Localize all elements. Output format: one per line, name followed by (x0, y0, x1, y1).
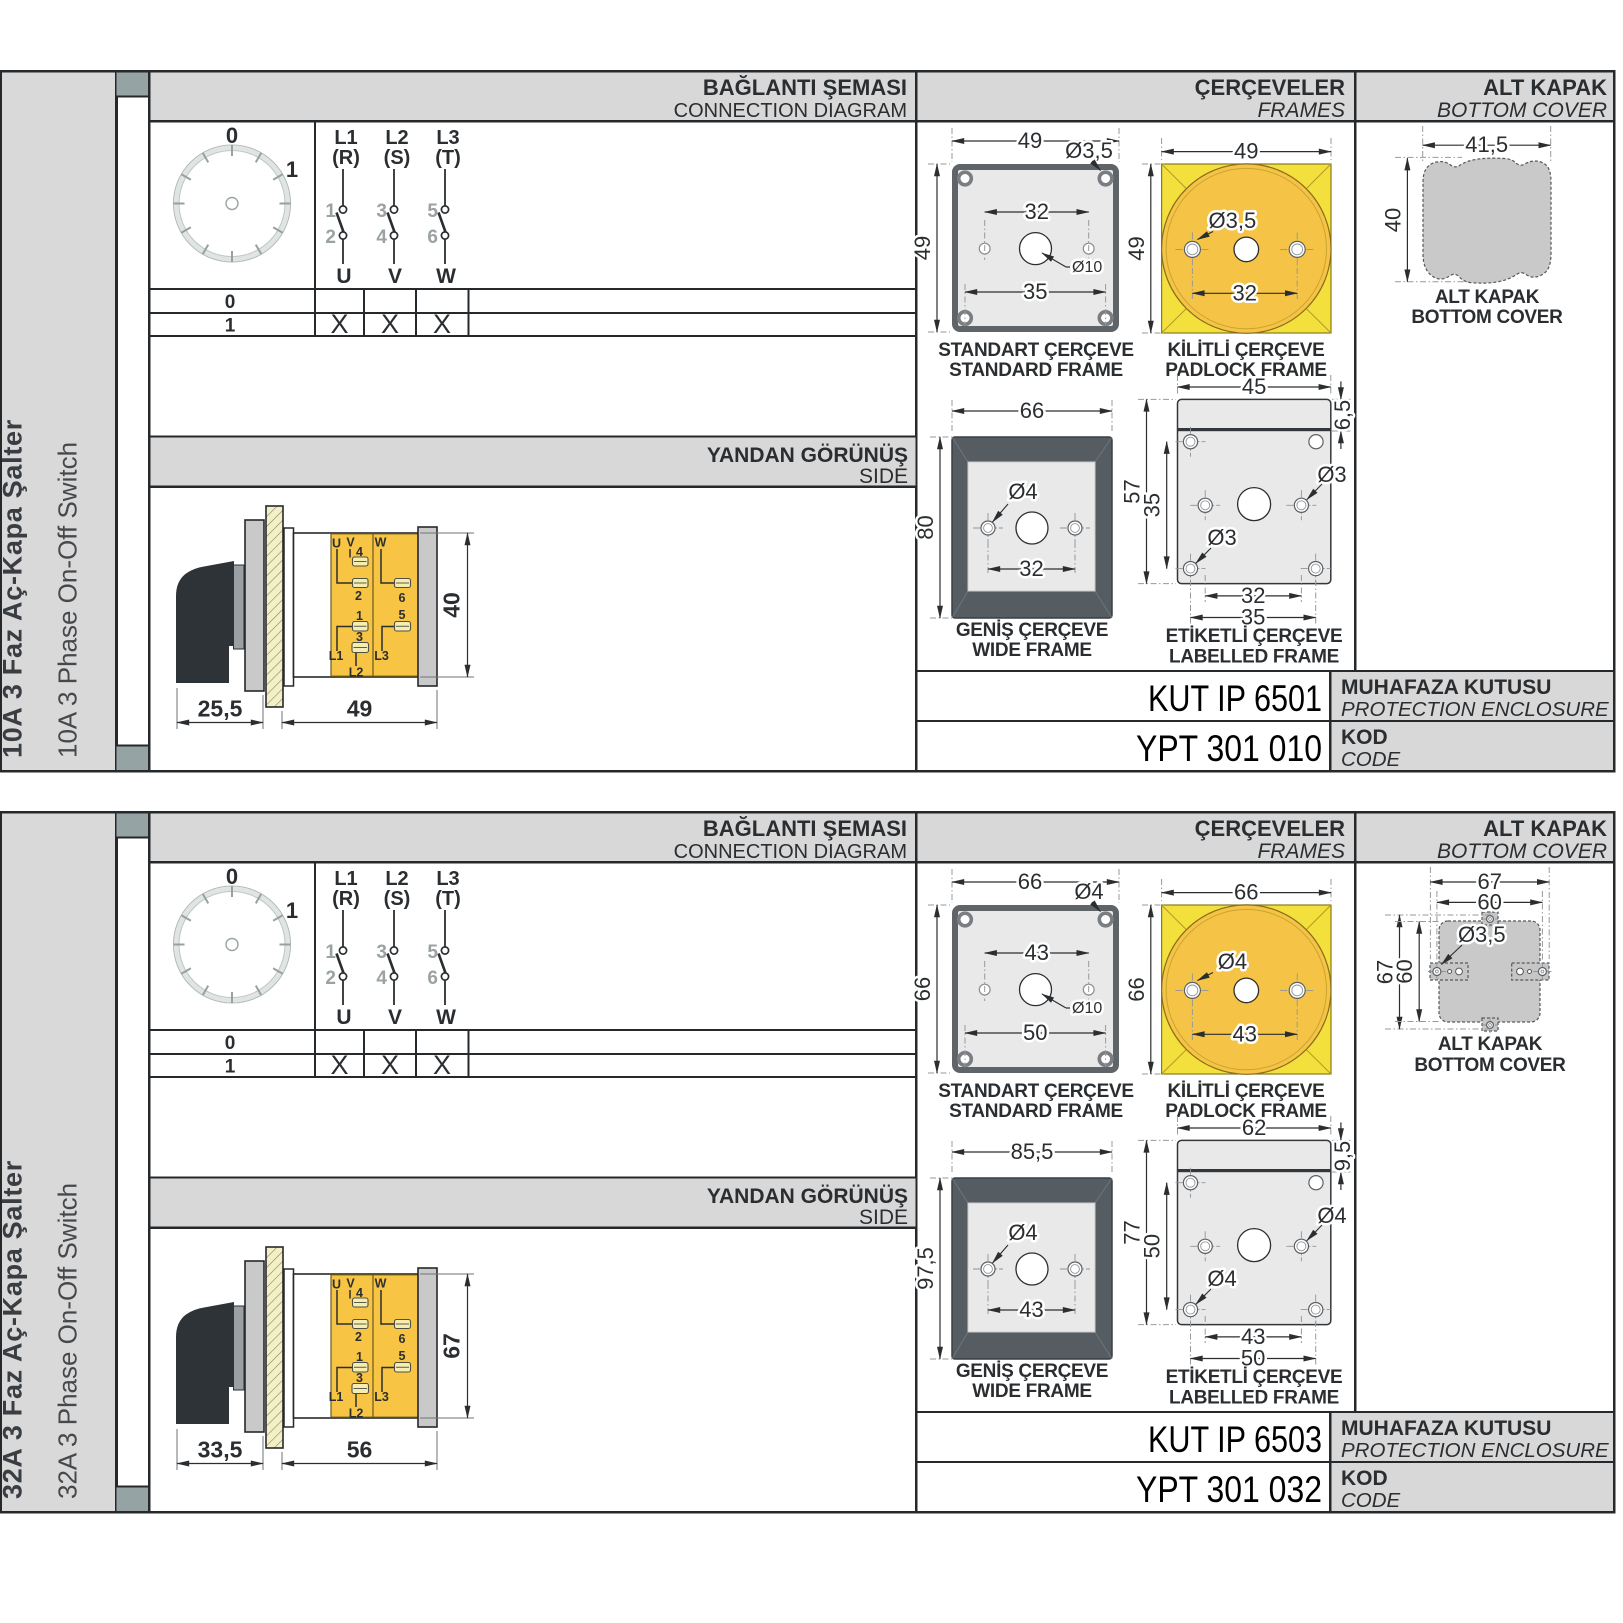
svg-text:(R): (R) (332, 147, 360, 169)
svg-text:V: V (346, 1277, 355, 1291)
svg-text:35: 35 (1023, 279, 1047, 304)
svg-text:3: 3 (376, 201, 387, 222)
svg-text:4: 4 (356, 1286, 363, 1300)
svg-text:ALT KAPAK: ALT KAPAK (1483, 75, 1607, 100)
svg-text:4: 4 (356, 545, 363, 559)
svg-text:ALT KAPAK: ALT KAPAK (1483, 816, 1607, 841)
svg-text:0: 0 (226, 123, 238, 148)
svg-text:5: 5 (399, 1349, 406, 1363)
svg-text:3: 3 (356, 1371, 363, 1385)
svg-text:W: W (436, 1006, 456, 1029)
svg-text:40: 40 (1380, 208, 1405, 232)
svg-text:25,5: 25,5 (198, 696, 243, 722)
svg-text:66: 66 (1018, 869, 1042, 894)
svg-text:1: 1 (286, 898, 298, 923)
svg-text:49: 49 (1234, 139, 1258, 164)
svg-text:Ø4: Ø4 (1317, 1203, 1346, 1228)
svg-text:Ø10: Ø10 (1072, 259, 1102, 276)
svg-text:2: 2 (355, 589, 362, 603)
svg-text:Ø3,5: Ø3,5 (1458, 922, 1506, 947)
svg-text:GENİŞ ÇERÇEVE: GENİŞ ÇERÇEVE (956, 1361, 1108, 1382)
svg-text:1: 1 (356, 1350, 363, 1364)
svg-text:BOTTOM COVER: BOTTOM COVER (1414, 1055, 1566, 1076)
svg-text:97,5: 97,5 (913, 1247, 938, 1290)
svg-text:MUHAFAZA KUTUSU: MUHAFAZA KUTUSU (1341, 1417, 1551, 1440)
svg-text:SIDE: SIDE (859, 1206, 908, 1229)
svg-text:X: X (433, 309, 451, 339)
svg-text:6: 6 (427, 227, 438, 248)
svg-text:45: 45 (1242, 374, 1266, 399)
svg-text:PROTECTION ENCLOSURE: PROTECTION ENCLOSURE (1341, 1439, 1609, 1462)
svg-text:49: 49 (1018, 128, 1042, 153)
svg-text:L3: L3 (436, 127, 459, 149)
svg-text:L2: L2 (349, 666, 364, 680)
svg-text:49: 49 (910, 236, 935, 260)
svg-text:STANDARD FRAME: STANDARD FRAME (949, 360, 1123, 381)
svg-text:U: U (332, 1278, 341, 1292)
svg-text:1: 1 (225, 1057, 236, 1078)
svg-text:CODE: CODE (1341, 748, 1401, 771)
svg-text:2: 2 (355, 1330, 362, 1344)
svg-text:KOD: KOD (1341, 1467, 1388, 1490)
svg-text:(R): (R) (332, 888, 360, 910)
svg-text:L1: L1 (334, 868, 357, 890)
svg-text:2: 2 (325, 968, 336, 989)
svg-text:66: 66 (910, 977, 935, 1001)
svg-text:STANDART ÇERÇEVE: STANDART ÇERÇEVE (938, 1081, 1133, 1102)
svg-text:L2: L2 (349, 1407, 364, 1421)
svg-text:Ø10: Ø10 (1072, 1000, 1102, 1017)
svg-text:3: 3 (376, 942, 387, 963)
svg-text:ÇERÇEVELER: ÇERÇEVELER (1195, 75, 1345, 100)
svg-text:X: X (330, 1050, 348, 1080)
svg-text:ETİKETLİ ÇERÇEVE: ETİKETLİ ÇERÇEVE (1166, 1367, 1343, 1388)
svg-text:1: 1 (225, 316, 236, 337)
svg-text:FRAMES: FRAMES (1257, 840, 1345, 863)
svg-text:4: 4 (376, 227, 387, 248)
svg-text:V: V (388, 265, 402, 288)
svg-text:LABELLED FRAME: LABELLED FRAME (1169, 1388, 1339, 1409)
svg-text:80: 80 (913, 515, 938, 539)
svg-text:L2: L2 (385, 868, 408, 890)
svg-text:5: 5 (427, 201, 438, 222)
svg-text:V: V (346, 536, 355, 550)
svg-text:PROTECTION ENCLOSURE: PROTECTION ENCLOSURE (1341, 698, 1609, 721)
svg-text:Ø3: Ø3 (1207, 525, 1236, 550)
svg-text:FRAMES: FRAMES (1257, 99, 1345, 122)
svg-text:U: U (336, 265, 351, 288)
svg-text:BAĞLANTI ŞEMASI: BAĞLANTI ŞEMASI (703, 75, 907, 100)
svg-text:60: 60 (1392, 959, 1417, 983)
svg-text:1: 1 (356, 609, 363, 623)
svg-text:50: 50 (1140, 1234, 1165, 1258)
svg-text:CODE: CODE (1341, 1489, 1401, 1512)
svg-text:KUT IP 6501: KUT IP 6501 (1148, 678, 1322, 719)
svg-text:(S): (S) (384, 888, 411, 910)
svg-text:BAĞLANTI ŞEMASI: BAĞLANTI ŞEMASI (703, 816, 907, 841)
svg-text:10A 3 Phase On-Off Switch: 10A 3 Phase On-Off Switch (53, 442, 83, 758)
svg-text:STANDARD FRAME: STANDARD FRAME (949, 1101, 1123, 1122)
svg-text:6: 6 (399, 591, 406, 605)
svg-text:49: 49 (347, 696, 373, 722)
svg-text:CONNECTION DIAGRAM: CONNECTION DIAGRAM (674, 100, 907, 122)
svg-text:50: 50 (1023, 1020, 1047, 1045)
svg-text:W: W (375, 1277, 387, 1291)
svg-text:0: 0 (225, 292, 236, 313)
svg-text:62: 62 (1242, 1115, 1266, 1140)
svg-text:41,5: 41,5 (1465, 132, 1508, 157)
svg-text:L3: L3 (374, 1390, 389, 1404)
svg-text:X: X (433, 1050, 451, 1080)
svg-text:MUHAFAZA KUTUSU: MUHAFAZA KUTUSU (1341, 676, 1551, 699)
svg-text:L3: L3 (436, 868, 459, 890)
svg-text:1: 1 (325, 201, 336, 222)
svg-text:BOTTOM COVER: BOTTOM COVER (1437, 99, 1607, 122)
svg-text:(S): (S) (384, 147, 411, 169)
svg-text:W: W (375, 536, 387, 550)
svg-text:Ø4: Ø4 (1008, 479, 1037, 504)
svg-text:YANDAN GÖRÜNÜŞ: YANDAN GÖRÜNÜŞ (707, 444, 908, 467)
svg-text:ETİKETLİ ÇERÇEVE: ETİKETLİ ÇERÇEVE (1166, 626, 1343, 647)
svg-text:BOTTOM COVER: BOTTOM COVER (1411, 307, 1563, 328)
svg-text:L1: L1 (329, 1390, 344, 1404)
svg-text:YPT 301 010: YPT 301 010 (1136, 728, 1322, 769)
svg-text:66: 66 (1234, 880, 1258, 905)
svg-text:32A 3 Faz Aç-Kapa Şalter: 32A 3 Faz Aç-Kapa Şalter (0, 1160, 28, 1499)
svg-text:X: X (381, 309, 399, 339)
svg-text:X: X (381, 1050, 399, 1080)
svg-text:32: 32 (1024, 199, 1048, 224)
svg-text:L1: L1 (334, 127, 357, 149)
svg-text:YPT 301 032: YPT 301 032 (1136, 1469, 1322, 1510)
svg-text:LABELLED FRAME: LABELLED FRAME (1169, 647, 1339, 668)
svg-text:(T): (T) (435, 147, 461, 169)
svg-text:33,5: 33,5 (198, 1437, 243, 1463)
svg-text:5: 5 (427, 942, 438, 963)
svg-text:6: 6 (399, 1332, 406, 1346)
svg-text:66: 66 (1020, 398, 1044, 423)
svg-text:35: 35 (1140, 493, 1165, 517)
svg-text:9,5: 9,5 (1330, 1141, 1355, 1172)
svg-text:32: 32 (1233, 280, 1257, 305)
svg-text:43: 43 (1024, 940, 1048, 965)
svg-text:ALT KAPAK: ALT KAPAK (1435, 287, 1540, 308)
svg-text:CONNECTION DIAGRAM: CONNECTION DIAGRAM (674, 841, 907, 863)
svg-text:L3: L3 (374, 649, 389, 663)
svg-text:43: 43 (1233, 1021, 1257, 1046)
svg-text:3: 3 (356, 630, 363, 644)
svg-text:SIDE: SIDE (859, 465, 908, 488)
svg-text:Ø3: Ø3 (1317, 462, 1346, 487)
svg-text:STANDART ÇERÇEVE: STANDART ÇERÇEVE (938, 340, 1133, 361)
svg-text:U: U (332, 537, 341, 551)
svg-text:Ø3,5: Ø3,5 (1209, 208, 1257, 233)
svg-text:WIDE FRAME: WIDE FRAME (972, 640, 1091, 661)
svg-text:1: 1 (286, 157, 298, 182)
svg-text:5: 5 (399, 608, 406, 622)
svg-text:67: 67 (439, 1333, 465, 1359)
svg-text:L1: L1 (329, 649, 344, 663)
svg-text:ÇERÇEVELER: ÇERÇEVELER (1195, 816, 1345, 841)
svg-text:X: X (330, 309, 348, 339)
svg-text:KOD: KOD (1341, 726, 1388, 749)
svg-text:KUT IP 6503: KUT IP 6503 (1148, 1419, 1322, 1460)
svg-text:2: 2 (325, 227, 336, 248)
svg-text:W: W (436, 265, 456, 288)
svg-text:GENİŞ ÇERÇEVE: GENİŞ ÇERÇEVE (956, 620, 1108, 641)
svg-text:(T): (T) (435, 888, 461, 910)
svg-text:32A 3 Phase On-Off Switch: 32A 3 Phase On-Off Switch (53, 1183, 83, 1499)
svg-text:BOTTOM COVER: BOTTOM COVER (1437, 840, 1607, 863)
svg-text:1: 1 (325, 942, 336, 963)
svg-text:V: V (388, 1006, 402, 1029)
svg-text:Ø4: Ø4 (1218, 949, 1247, 974)
svg-text:60: 60 (1477, 889, 1501, 914)
svg-text:KİLİTLİ ÇERÇEVE: KİLİTLİ ÇERÇEVE (1167, 340, 1324, 361)
svg-text:6,5: 6,5 (1330, 400, 1355, 431)
svg-text:0: 0 (226, 864, 238, 889)
svg-text:Ø4: Ø4 (1207, 1266, 1236, 1291)
svg-text:0: 0 (225, 1033, 236, 1054)
svg-text:49: 49 (1124, 236, 1149, 260)
svg-text:4: 4 (376, 968, 387, 989)
svg-text:56: 56 (347, 1437, 373, 1463)
svg-text:85,5: 85,5 (1011, 1139, 1054, 1164)
svg-text:32: 32 (1019, 556, 1043, 581)
svg-text:10A 3 Faz Aç-Kapa Şalter: 10A 3 Faz Aç-Kapa Şalter (0, 419, 28, 758)
svg-text:6: 6 (427, 968, 438, 989)
svg-text:L2: L2 (385, 127, 408, 149)
svg-text:WIDE FRAME: WIDE FRAME (972, 1381, 1091, 1402)
svg-text:Ø4: Ø4 (1074, 879, 1103, 904)
svg-text:KİLİTLİ ÇERÇEVE: KİLİTLİ ÇERÇEVE (1167, 1081, 1324, 1102)
svg-text:40: 40 (439, 592, 465, 618)
svg-text:Ø3,5: Ø3,5 (1065, 138, 1113, 163)
svg-text:U: U (336, 1006, 351, 1029)
svg-text:66: 66 (1124, 977, 1149, 1001)
svg-text:Ø4: Ø4 (1008, 1220, 1037, 1245)
svg-text:ALT KAPAK: ALT KAPAK (1438, 1034, 1543, 1055)
svg-text:YANDAN GÖRÜNÜŞ: YANDAN GÖRÜNÜŞ (707, 1185, 908, 1208)
svg-text:43: 43 (1019, 1297, 1043, 1322)
